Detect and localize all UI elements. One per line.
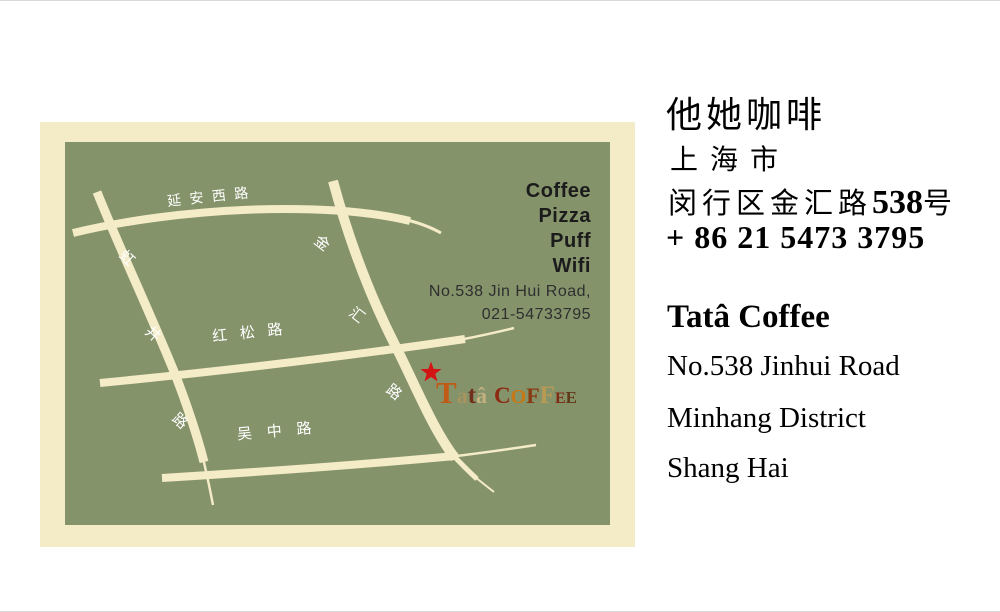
logo-letter: F	[526, 381, 539, 411]
address-chinese: 闵行区金汇路538号	[668, 180, 957, 222]
logo-letter: t	[468, 381, 476, 411]
tata-coffee-logo: TatâCOFFEE	[436, 378, 577, 414]
logo-letter: E	[566, 383, 577, 413]
address-english-street: No.538 Jinhui Road	[667, 350, 900, 383]
road-wuzhong-tail	[449, 445, 536, 457]
road-hongjing-tail	[203, 458, 213, 505]
map-card: 延 安 西 路 虹 井 路 金 汇 路 红 松 路 吴 中 路 Coffee P…	[40, 122, 635, 547]
road-jinhui-tail-end	[475, 477, 494, 492]
logo-letter: C	[494, 381, 511, 411]
address-english-city: Shang Hai	[667, 452, 789, 485]
label-wuzhong-road: 吴 中 路	[236, 419, 317, 444]
road-yanan-west	[73, 209, 410, 233]
map-canvas: 延 安 西 路 虹 井 路 金 汇 路 红 松 路 吴 中 路 Coffee P…	[65, 142, 610, 525]
logo-letter: F	[540, 381, 555, 411]
road-hongsong-tail	[459, 328, 514, 340]
menu-item-wifi: Wifi	[526, 254, 591, 279]
label-hongsong-road: 红 松 路	[211, 320, 287, 346]
label-hui: 汇	[346, 303, 369, 326]
logo-letter: O	[511, 382, 527, 412]
menu-list: Coffee Pizza Puff Wifi	[526, 179, 591, 279]
phone-number: + 86 21 5473 3795	[666, 219, 925, 256]
menu-item-coffee: Coffee	[526, 179, 591, 204]
address-chinese-suffix: 号	[923, 188, 957, 220]
address-english-district: Minhang District	[667, 402, 866, 435]
road-yanan-west-tail	[403, 219, 441, 233]
label-jin: 金	[311, 231, 334, 254]
logo-letter: T	[436, 378, 457, 408]
address-street-number: 538	[872, 184, 923, 221]
map-address-phone: 021-54733795	[429, 303, 591, 326]
shop-name-chinese: 他她咖啡	[666, 86, 826, 138]
address-chinese-prefix: 闵行区金汇路	[668, 188, 872, 220]
map-address: No.538 Jin Hui Road, 021-54733795	[429, 280, 591, 326]
menu-item-puff: Puff	[526, 229, 591, 254]
shop-name-english: Tatâ Coffee	[667, 299, 830, 336]
city-chinese: 上海市	[670, 138, 790, 178]
logo-letter: E	[555, 384, 566, 414]
logo-letter: a	[457, 381, 468, 411]
logo-letter: â	[476, 381, 487, 411]
menu-item-pizza: Pizza	[526, 204, 591, 229]
map-address-street: No.538 Jin Hui Road,	[429, 280, 591, 303]
label-jinhui-lu: 路	[383, 380, 406, 403]
